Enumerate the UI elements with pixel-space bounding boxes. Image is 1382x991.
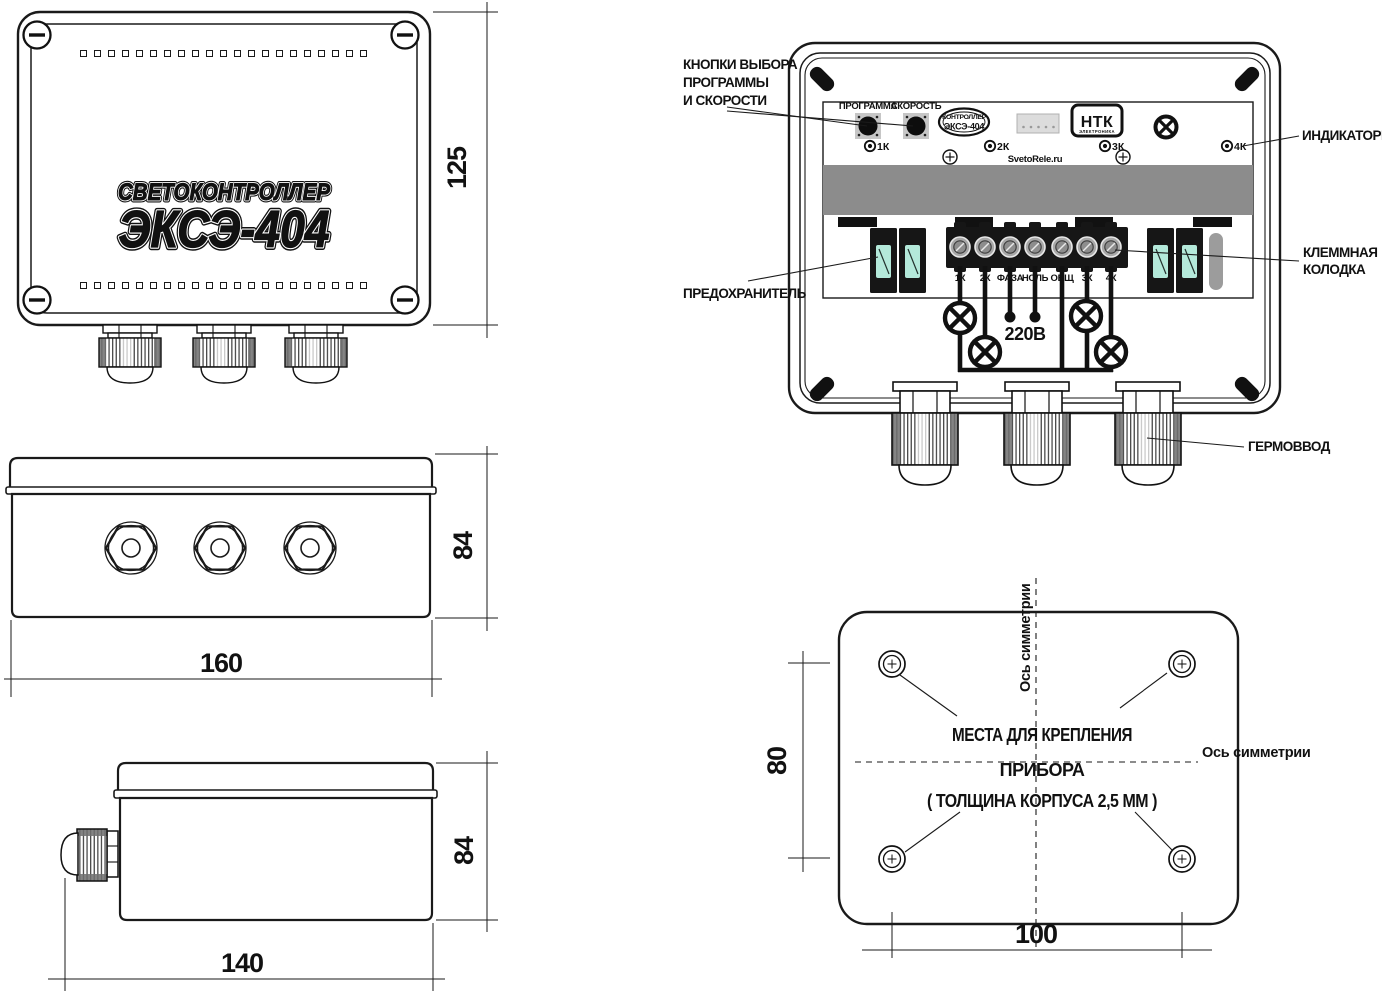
dim-140-label: 140 (221, 948, 263, 978)
lid-outline (31, 24, 417, 313)
led-2k-label: 2К (997, 141, 1010, 153)
enclosure-outline (18, 12, 430, 325)
callout-buttons-line1: КНОПКИ ВЫБОРА (683, 57, 798, 72)
led-2k-icon (985, 141, 995, 151)
callout-buttons-line2: ПРОГРАММЫ (683, 75, 769, 90)
dim-84-label: 84 (448, 531, 478, 560)
callout-indicators: ИНДИКАТОРЫ (1302, 128, 1382, 143)
callout-fuse: ПРЕДОХРАНИТЕЛЬ (683, 286, 807, 301)
corner-mark-icon (807, 64, 837, 94)
mount-note-line2: ПРИБОРА (1000, 760, 1085, 780)
terminal-screw-icon (1101, 237, 1121, 257)
cable-gland-icon (1004, 382, 1070, 485)
lamp-3-icon (1071, 301, 1101, 331)
terminal-screw-icon (950, 237, 970, 257)
lid-lip (114, 790, 437, 798)
gland-nut-icon (284, 522, 336, 574)
fuse-icon (899, 228, 926, 293)
axis-label-horizontal: Ось симметрии (1202, 745, 1310, 761)
program-button-label: ПРОГРАММА (839, 101, 898, 112)
dim-84-side-view: 84 (436, 751, 498, 932)
mount-note-line3: ( ТОЛЩИНА КОРПУСА 2,5 ММ ) (927, 791, 1157, 811)
gland-nut-icon (194, 522, 246, 574)
internal-view: ПРОГРАММА СКОРОСТЬ КОНТРОЛЛЕР ЭКСЭ-404 Н… (683, 43, 1382, 485)
ntk-logo: НТК ЭЛЕКТРОНИКА (1072, 105, 1122, 136)
mount-strip (1193, 217, 1232, 227)
axis-label-vertical: Ось симметрии (1018, 584, 1034, 692)
led-4k-label: 4К (1234, 141, 1247, 153)
side-view: 140 84 (48, 751, 498, 991)
mount-hole-icon (1169, 846, 1195, 872)
null-wire-dot (1030, 312, 1041, 323)
mount-note-line1: МЕСТА ДЛЯ КРЕПЛЕНИЯ (952, 725, 1132, 745)
cable-gland-icon (1115, 382, 1181, 485)
dim-140: 140 (48, 878, 445, 991)
panel-screw-icon (1116, 150, 1130, 164)
controller-badge: КОНТРОЛЛЕР ЭКСЭ-404 (939, 109, 989, 136)
lamp-1-icon (945, 303, 975, 333)
dim-160-label: 160 (200, 648, 242, 678)
callout-buttons-line3: И СКОРОСТИ (683, 93, 767, 108)
technical-drawing-page: СВЕТОКОНТРОЛЛЕР СВЕТОКОНТРОЛЛЕР СВЕТОКОН… (0, 0, 1382, 991)
mount-strip (838, 217, 877, 227)
led-1k-label: 1К (877, 141, 890, 153)
ntk-logo-subtext: ЭЛЕКТРОНИКА (1079, 129, 1115, 134)
dim-80: 80 (762, 651, 830, 872)
terminal-block (946, 222, 1128, 272)
mounting-view: Ось симметрии Ось симметрии МЕСТА ДЛЯ КР… (762, 578, 1310, 958)
trimmer-icon[interactable] (1156, 117, 1177, 138)
fuse-icon (1147, 228, 1174, 293)
gray-band (823, 165, 1253, 215)
led-1k-icon (865, 141, 875, 151)
vent-row-bottom (80, 282, 367, 290)
led-3k-icon (1100, 141, 1110, 151)
led-4k-icon (1222, 141, 1232, 151)
body-outline (12, 494, 430, 617)
pin-connector (1017, 114, 1059, 133)
cable-gland-icon (892, 382, 958, 485)
dim-84-bottom-view: 84 (435, 446, 498, 631)
corner-mark-icon (1232, 374, 1262, 404)
dim-84-label: 84 (449, 836, 479, 865)
terminal-screw-icon (1000, 237, 1020, 257)
voltage-label: 220В (1004, 324, 1046, 344)
capsule-component (1209, 233, 1223, 290)
callout-terminal-line1: КЛЕММНАЯ (1303, 245, 1377, 260)
fuse-icon (1176, 228, 1203, 293)
lid-top-outline (10, 458, 432, 487)
dim-125: 125 (433, 2, 498, 338)
mount-hole-icon (879, 651, 905, 677)
side-gland-icon (61, 829, 118, 881)
callout-gland: ГЕРМОВВОД (1248, 439, 1331, 454)
mount-hole-icon (1169, 651, 1195, 677)
bottom-view: 160 84 (4, 446, 498, 697)
gland-nut-icon (105, 522, 157, 574)
dim-100-label: 100 (1015, 919, 1057, 949)
corner-screw-icon (392, 287, 419, 314)
dim-80-label: 80 (762, 747, 792, 775)
corner-screw-icon (392, 22, 419, 49)
dim-100: 100 (862, 912, 1212, 958)
vent-row-top (80, 50, 367, 58)
eksе-404-drawing: СВЕТОКОНТРОЛЛЕР СВЕТОКОНТРОЛЛЕР СВЕТОКОН… (0, 0, 1382, 991)
mount-hole-icon (879, 846, 905, 872)
lamp-2-icon (970, 337, 1000, 367)
speed-button-label: СКОРОСТЬ (891, 101, 942, 112)
dim-160: 160 (4, 620, 442, 697)
cover-logo: СВЕТОКОНТРОЛЛЕР СВЕТОКОНТРОЛЛЕР СВЕТОКОН… (118, 179, 331, 259)
dim-125-label: 125 (442, 146, 472, 189)
fuse-icon (870, 228, 897, 293)
corner-mark-icon (1232, 64, 1262, 94)
phase-wire-dot (1005, 312, 1016, 323)
lamp-4-icon (1096, 337, 1126, 367)
terminal-screw-icon (1025, 237, 1045, 257)
badge-line1: КОНТРОЛЛЕР (942, 114, 986, 121)
program-button[interactable] (855, 113, 881, 139)
corner-screw-icon (24, 287, 51, 314)
site-label: SvetoRele.ru (1008, 154, 1063, 165)
cable-gland-icon (193, 325, 255, 383)
front-view: СВЕТОКОНТРОЛЛЕР СВЕТОКОНТРОЛЛЕР СВЕТОКОН… (18, 2, 498, 383)
callout-terminal-line2: КОЛОДКА (1303, 262, 1366, 277)
corner-mark-icon (807, 374, 837, 404)
terminal-screw-icon (1052, 237, 1072, 257)
mount-note: МЕСТА ДЛЯ КРЕПЛЕНИЯ ПРИБОРА ( ТОЛЩИНА КО… (927, 725, 1157, 811)
corner-screw-icon (24, 22, 51, 49)
lid-top-outline (118, 763, 433, 790)
cable-gland-icon (285, 325, 347, 383)
terminal-screw-icon (975, 237, 995, 257)
body-outline (120, 798, 432, 920)
panel-screw-icon (943, 150, 957, 164)
wiring-diagram: 220В (945, 266, 1126, 372)
logo-line2: ЭКСЭ-404 (119, 201, 330, 259)
terminal-screw-icon (1077, 237, 1097, 257)
cable-gland-icon (99, 325, 161, 383)
badge-line2: ЭКСЭ-404 (944, 122, 984, 132)
